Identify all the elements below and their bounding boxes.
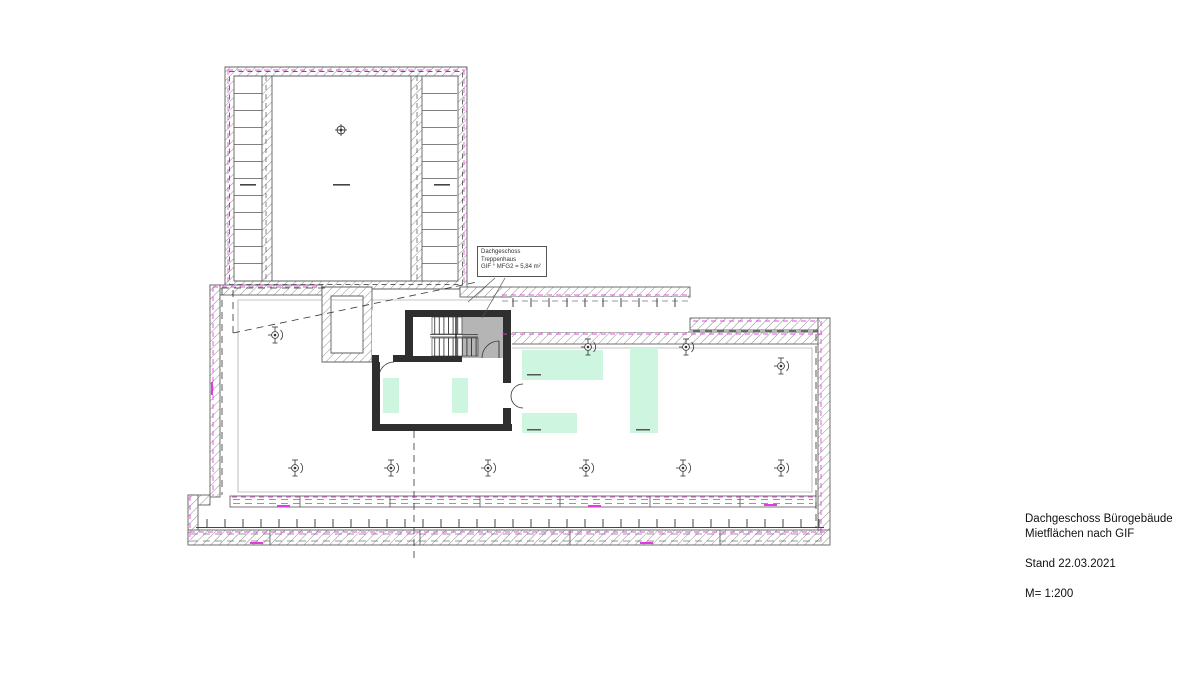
corridor-strip [502, 297, 688, 332]
stair-treads-upper [432, 317, 462, 334]
rental-area-highlights [522, 348, 658, 433]
right-roof-strip [422, 79, 457, 278]
stairwell [372, 310, 523, 432]
title-project: Dachgeschoss Bürogebäude [1025, 512, 1195, 527]
left-roof-strip [234, 79, 262, 278]
floorplan-page: Dachgeschoss Treppenhaus GIF ° MFG2 = 5,… [0, 0, 1200, 675]
roof-opening-icon [335, 124, 347, 136]
roof-drains [268, 327, 789, 476]
rental-area-highlight [452, 378, 468, 413]
inner-bottom-wall [230, 496, 816, 507]
title-subtitle: Mietflächen nach GIF [1025, 527, 1195, 542]
double-door-swing [511, 384, 523, 408]
rental-area-highlight [383, 378, 399, 413]
annotation-line-1: Dachgeschoss [481, 249, 543, 257]
stair-treads-lower [432, 338, 478, 356]
annotation-line-3: GIF ° MFG2 = 5,84 m² [481, 264, 543, 272]
annotation-line-2: Treppenhaus [481, 257, 543, 265]
stairwell-annotation-box: Dachgeschoss Treppenhaus GIF ° MFG2 = 5,… [477, 246, 547, 277]
floor-plan-drawing [0, 0, 1200, 675]
title-date: Stand 22.03.2021 [1025, 557, 1195, 572]
title-scale: M= 1:200 [1025, 587, 1195, 602]
title-block: Dachgeschoss Bürogebäude Mietflächen nac… [1025, 512, 1195, 602]
upper-building-block [225, 67, 467, 289]
